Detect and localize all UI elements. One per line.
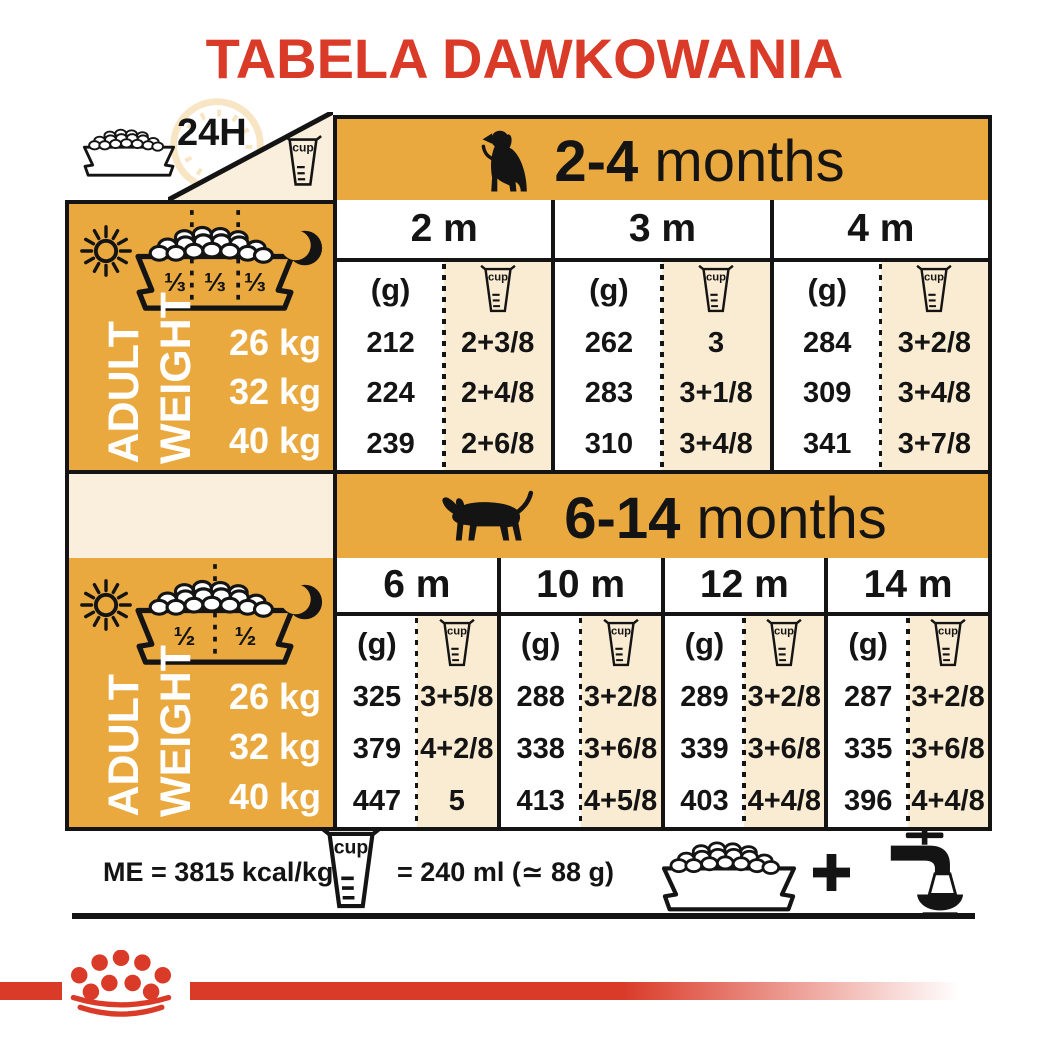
grams-value: 212 <box>337 318 444 369</box>
weight-row-label: 32 kg <box>229 367 321 416</box>
adult-weight-label: WEIGHT <box>155 292 198 464</box>
water-tap-icon <box>855 825 967 917</box>
portion-label: ⅓ <box>204 267 226 297</box>
cup-icon: cup <box>916 265 952 315</box>
grams-subcolumn: (g) 212 224 239 <box>337 262 444 470</box>
grams-value: 335 <box>828 724 908 776</box>
grams-value: 396 <box>828 775 908 827</box>
grams-value: 338 <box>501 724 581 776</box>
grams-value: 262 <box>555 318 662 369</box>
section2-sidebar: ½ ½ ADULT WEIGHT 26 kg 32 kg 40 kg <box>65 558 341 831</box>
cups-value: 2+4/8 <box>444 369 551 420</box>
weight-row-label: 26 kg <box>229 318 321 367</box>
section1-months-table: 2 m (g) 212 224 239 cup 2+3/8 2+4/8 2+6/… <box>333 200 992 474</box>
weight-row-label: 32 kg <box>229 722 321 772</box>
grams-value: 403 <box>665 775 745 827</box>
weight-row-label: 40 kg <box>229 772 321 822</box>
grams-subcolumn: (g) 284 309 341 <box>774 262 881 470</box>
grams-value: 224 <box>337 369 444 420</box>
kibble-bowl-24h-icon <box>78 110 180 192</box>
grams-value: 325 <box>337 672 417 724</box>
cups-subcolumn: cup 3 3+1/8 3+4/8 <box>662 262 769 470</box>
page-title: TABELA DAWKOWANIA <box>0 26 1049 91</box>
cup-icon: cup <box>284 134 322 190</box>
moon-icon <box>283 226 323 270</box>
month-column-3m: 3 m (g) 262 283 310 cup 3 3+1/8 3+4/8 <box>555 200 773 470</box>
unit-grams-label: (g) <box>337 262 444 318</box>
weight-list: 26 kg 32 kg 40 kg <box>229 318 321 465</box>
cups-value: 4+4/8 <box>744 775 824 827</box>
legend-footer: ME = 3815 kcal/kg cup = 240 ml (≃ 88 g) <box>65 827 984 915</box>
cups-value: 3+2/8 <box>908 672 988 724</box>
brand-band-right <box>190 982 976 1000</box>
unit-grams-label: (g) <box>555 262 662 318</box>
kibble-bowl-icon <box>653 835 805 913</box>
cups-value: 3+2/8 <box>744 672 824 724</box>
cups-value: 3+5/8 <box>417 672 497 724</box>
section2-age-range: 6-14 <box>564 486 680 551</box>
cups-value: 3+2/8 <box>881 318 988 369</box>
month-header: 3 m <box>555 200 769 262</box>
svg-text:cup: cup <box>488 271 508 283</box>
section2-title: 6-14 months <box>564 485 886 552</box>
cups-value: 4+4/8 <box>908 775 988 827</box>
adult-weight-label: WEIGHT <box>155 645 198 817</box>
royal-canin-crown-logo <box>56 950 186 1018</box>
cup-icon: cup <box>480 265 516 315</box>
weight-list: 26 kg 32 kg 40 kg <box>229 672 321 822</box>
cup-icon: cup <box>315 827 387 913</box>
cups-subcolumn: cup 2+3/8 2+4/8 2+6/8 <box>444 262 551 470</box>
svg-text:cup: cup <box>292 141 313 155</box>
footer-divider <box>72 913 975 919</box>
plus-icon <box>813 854 850 891</box>
grams-value: 288 <box>501 672 581 724</box>
metabolizable-energy-label: ME = 3815 kcal/kg <box>103 857 333 888</box>
grams-value: 287 <box>828 672 908 724</box>
grams-subcolumn: (g) 287 335 396 <box>828 616 908 827</box>
cups-value: 3+6/8 <box>744 724 824 776</box>
grams-subcolumn: (g) 289 339 403 <box>665 616 745 827</box>
cup-icon: cup <box>766 619 802 669</box>
month-header: 12 m <box>665 558 825 616</box>
month-header: 2 m <box>337 200 551 262</box>
section1-age-unit: months <box>654 129 844 194</box>
unit-grams-label: (g) <box>665 616 745 672</box>
month-header: 6 m <box>337 558 497 616</box>
moon-icon <box>283 580 323 624</box>
cups-subcolumn: cup 3+5/8 4+2/8 5 <box>417 616 497 827</box>
unit-grams-label: (g) <box>337 616 417 672</box>
svg-text:cup: cup <box>774 625 794 637</box>
grams-subcolumn: (g) 288 338 413 <box>501 616 581 827</box>
cups-value: 3+6/8 <box>908 724 988 776</box>
adult-dog-icon <box>438 488 542 548</box>
month-header: 14 m <box>828 558 988 616</box>
unit-grams-label: (g) <box>828 616 908 672</box>
grams-value: 413 <box>501 775 581 827</box>
weight-row-label: 40 kg <box>229 416 321 465</box>
svg-text:cup: cup <box>334 836 369 858</box>
section2-months-table: 6 m (g) 325 379 447 cup 3+5/8 4+2/8 5 10… <box>333 558 992 831</box>
unit-grams-label: (g) <box>501 616 581 672</box>
cup-icon: cup <box>698 265 734 315</box>
month-column-2m: 2 m (g) 212 224 239 cup 2+3/8 2+4/8 2+6/… <box>337 200 555 470</box>
puppy-icon <box>480 129 532 195</box>
month-header: 4 m <box>774 200 988 262</box>
section2-header-band: 6-14 months <box>333 470 992 566</box>
section1-header-band: 2-4 months <box>333 115 992 208</box>
cup-icon: cup <box>439 619 475 669</box>
svg-text:cup: cup <box>706 271 726 283</box>
grams-value: 379 <box>337 724 417 776</box>
section2-left-panel <box>65 470 341 566</box>
svg-text:cup: cup <box>938 625 958 637</box>
month-column-12m: 12 m (g) 289 339 403 cup 3+2/8 3+6/8 4+4… <box>665 558 829 827</box>
grams-value: 289 <box>665 672 745 724</box>
cups-value: 2+6/8 <box>444 419 551 470</box>
cups-subcolumn: cup 3+2/8 3+4/8 3+7/8 <box>881 262 988 470</box>
cups-value: 4+5/8 <box>581 775 661 827</box>
grams-value: 447 <box>337 775 417 827</box>
section1-title: 2-4 months <box>554 128 844 195</box>
svg-text:cup: cup <box>924 271 944 283</box>
section1-sidebar: ⅓ ⅓ ⅓ ADULT WEIGHT 26 kg 32 kg 40 kg <box>65 200 341 478</box>
adult-weight-label: ADULT <box>103 674 146 817</box>
cups-value: 3+7/8 <box>881 419 988 470</box>
grams-subcolumn: (g) 262 283 310 <box>555 262 662 470</box>
grams-value: 339 <box>665 724 745 776</box>
grams-value: 284 <box>774 318 881 369</box>
portion-label: ½ <box>235 621 257 651</box>
label-24h: 24H <box>177 112 247 155</box>
grams-value: 310 <box>555 419 662 470</box>
grams-subcolumn: (g) 325 379 447 <box>337 616 417 827</box>
cups-subcolumn: cup 3+2/8 3+6/8 4+4/8 <box>744 616 824 827</box>
cups-value: 3+1/8 <box>662 369 769 420</box>
grams-value: 239 <box>337 419 444 470</box>
section2-age-unit: months <box>697 486 887 551</box>
feeding-table-sheet: TABELA DAWKOWANIA 24H cup 2-4 months <box>0 0 1049 1049</box>
month-column-6m: 6 m (g) 325 379 447 cup 3+5/8 4+2/8 5 <box>337 558 501 827</box>
weight-row-label: 26 kg <box>229 672 321 722</box>
adult-weight-label: ADULT <box>103 321 146 464</box>
cup-icon: cup <box>603 619 639 669</box>
month-header: 10 m <box>501 558 661 616</box>
cup-icon: cup <box>930 619 966 669</box>
portion-label: ⅓ <box>244 267 266 297</box>
month-column-10m: 10 m (g) 288 338 413 cup 3+2/8 3+6/8 4+5… <box>501 558 665 827</box>
grams-value: 341 <box>774 419 881 470</box>
cups-value: 3 <box>662 318 769 369</box>
month-column-14m: 14 m (g) 287 335 396 cup 3+2/8 3+6/8 4+4… <box>828 558 988 827</box>
cups-subcolumn: cup 3+2/8 3+6/8 4+5/8 <box>581 616 661 827</box>
section1-age-range: 2-4 <box>554 129 638 194</box>
cups-value: 3+4/8 <box>662 419 769 470</box>
cups-value: 4+2/8 <box>417 724 497 776</box>
cups-value: 5 <box>417 775 497 827</box>
cup-equivalence-label: = 240 ml (≃ 88 g) <box>397 857 614 888</box>
cups-value: 3+4/8 <box>881 369 988 420</box>
cups-value: 3+6/8 <box>581 724 661 776</box>
grams-value: 309 <box>774 369 881 420</box>
cups-value: 3+2/8 <box>581 672 661 724</box>
svg-text:cup: cup <box>447 625 467 637</box>
svg-text:cup: cup <box>611 625 631 637</box>
brand-band-left <box>0 982 62 1000</box>
cups-value: 2+3/8 <box>444 318 551 369</box>
cups-subcolumn: cup 3+2/8 3+6/8 4+4/8 <box>908 616 988 827</box>
unit-grams-label: (g) <box>774 262 881 318</box>
grams-value: 283 <box>555 369 662 420</box>
month-column-4m: 4 m (g) 284 309 341 cup 3+2/8 3+4/8 3+7/… <box>774 200 988 470</box>
